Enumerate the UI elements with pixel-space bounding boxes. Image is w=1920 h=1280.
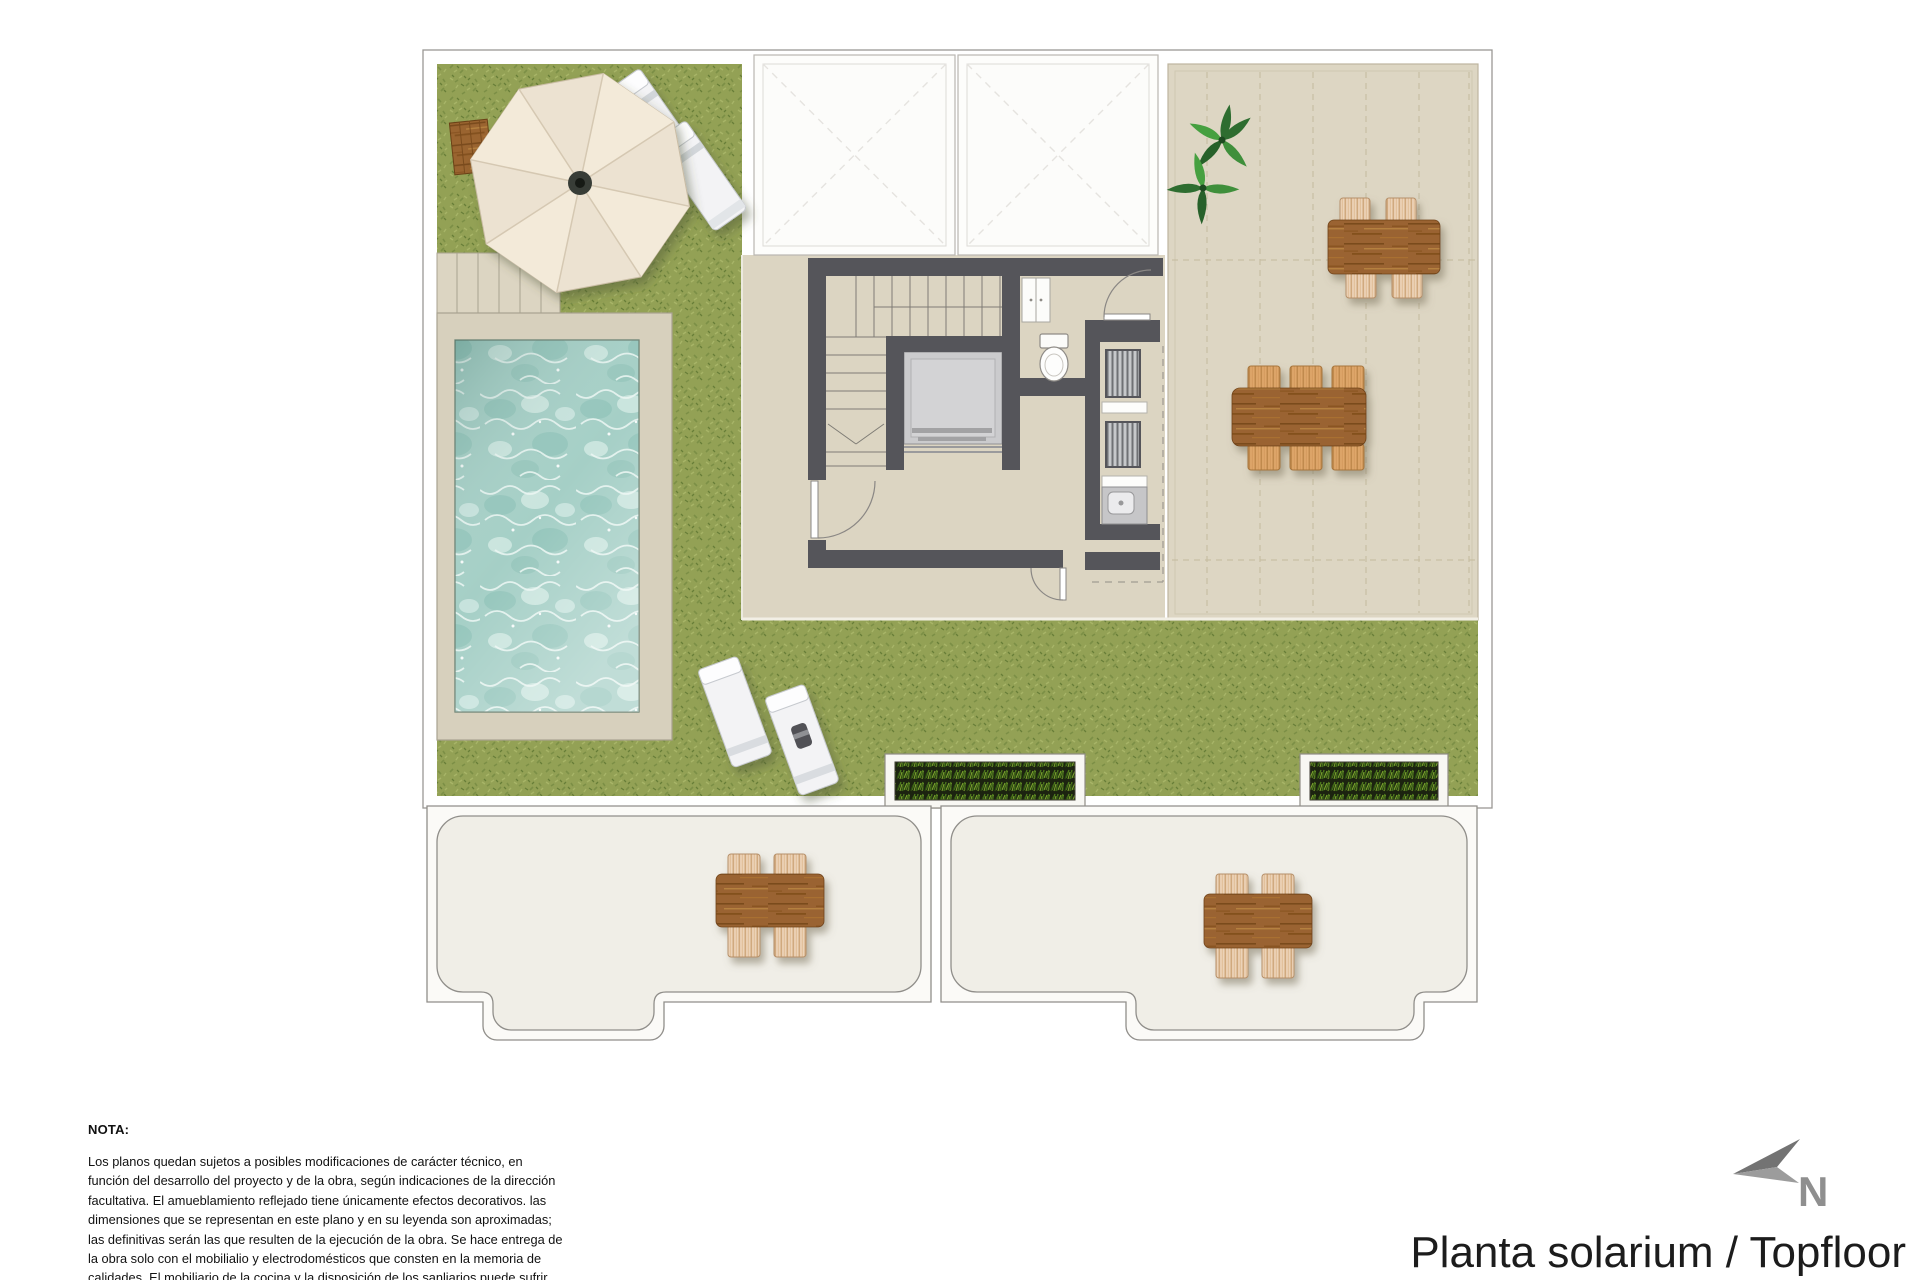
roof-void-panel [754,55,955,255]
plan-title: Planta solarium / Topfloor [1206,1228,1906,1278]
entry-door-leaf [1104,314,1150,320]
wood-table [716,874,824,927]
grille-unit [1106,350,1140,397]
note-block: NOTA: Los planos quedan sujetos a posibl… [88,1122,566,1280]
pool-zone [437,253,672,740]
grille-unit [1106,422,1140,467]
toilet [1040,334,1068,381]
floor-plan-sheet: NOTA: Los planos quedan sujetos a posibl… [0,0,1920,1280]
planter [1300,754,1448,808]
wood-table [1328,220,1440,274]
wood-table [1204,894,1312,948]
planter [885,754,1085,808]
wood-table [1232,388,1366,446]
roof-void-panel [958,55,1158,255]
dining-set-6 [1232,366,1366,470]
note-heading: NOTA: [88,1122,566,1137]
chair [1346,272,1376,298]
chair [1290,444,1322,470]
chair [774,925,806,957]
note-body: Los planos quedan sujetos a posibles mod… [88,1152,566,1280]
north-arrow-icon [1733,1139,1800,1183]
lower-floor-room [427,806,931,1040]
chair [728,925,760,957]
lower-floor [427,806,1477,1040]
chair [1392,272,1422,298]
west-door-leaf [811,481,818,538]
chair [1262,946,1294,978]
kitchen-shelf [1102,476,1147,487]
floor-plan-drawing [0,0,1920,1280]
elevator [904,352,1002,452]
chair [1248,444,1280,470]
south-door-leaf [1060,568,1066,600]
chair [1332,444,1364,470]
north-label: N [1798,1168,1828,1216]
kitchen-shelf [1102,402,1147,413]
chair [1216,946,1248,978]
